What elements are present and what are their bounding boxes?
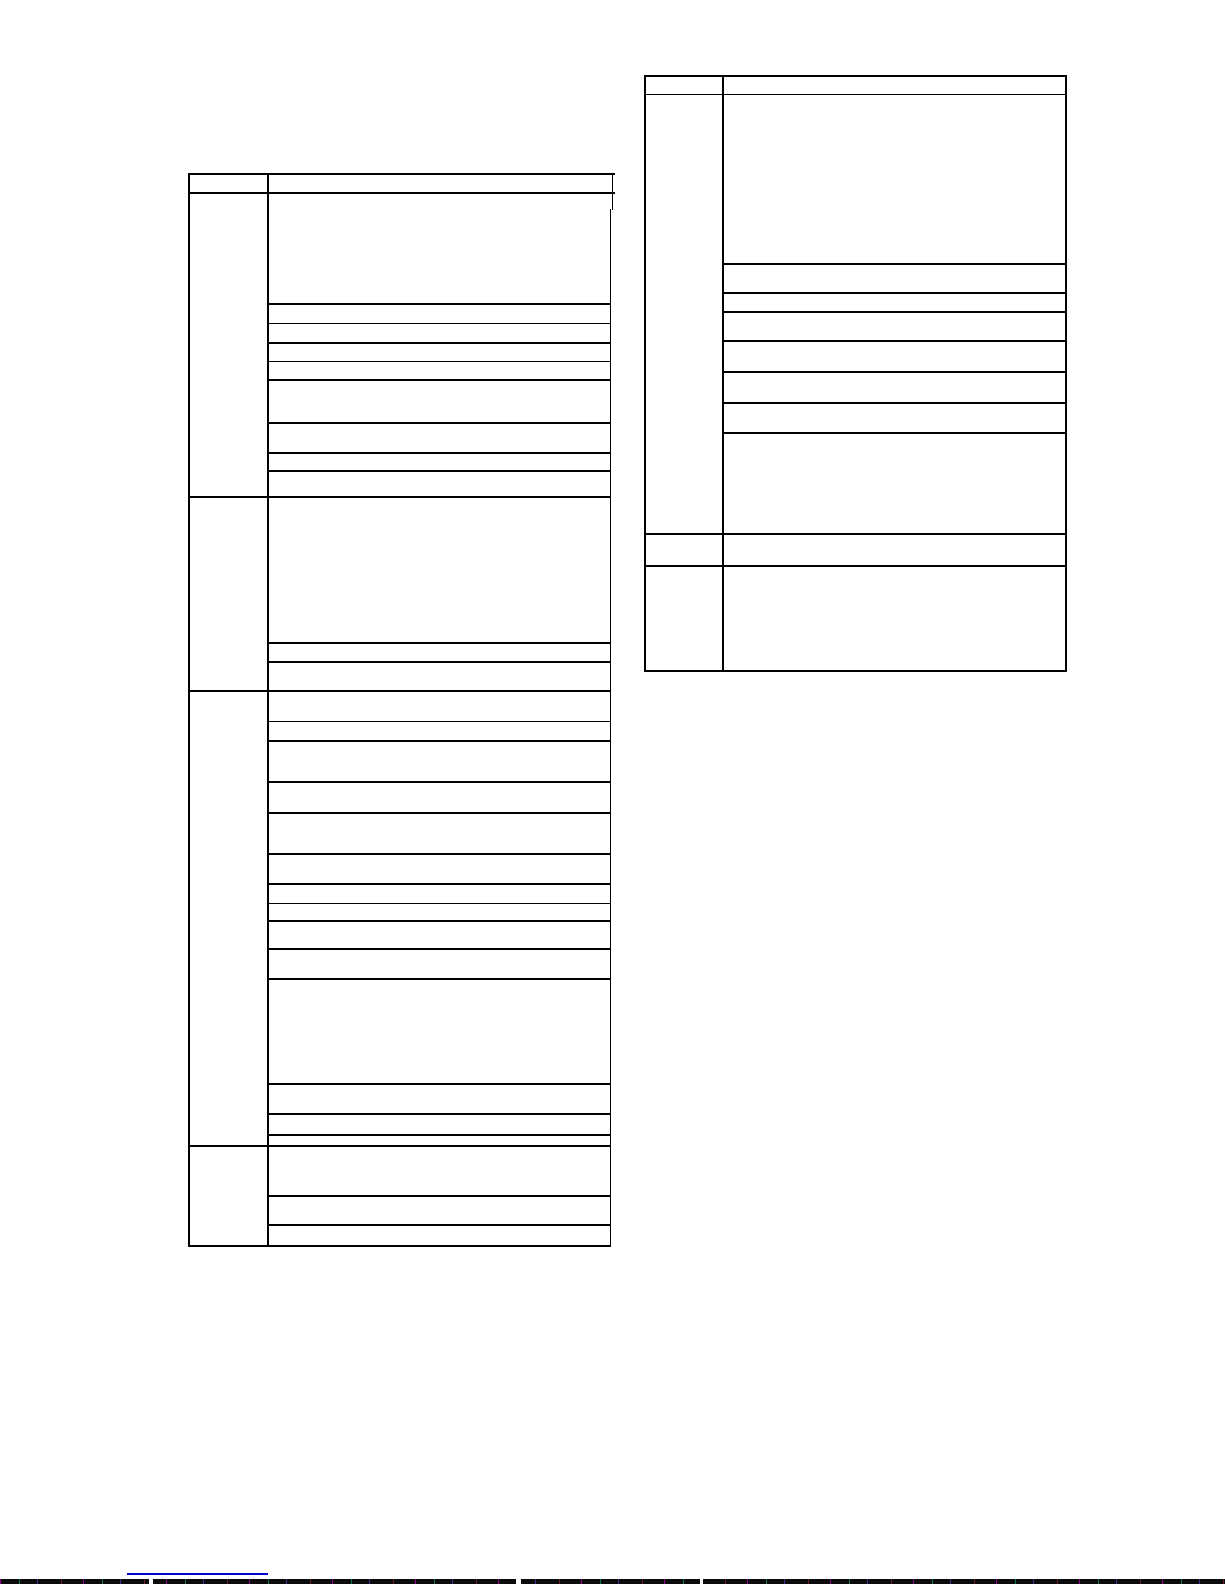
table-bottom-border bbox=[644, 670, 1067, 672]
table-right-border bbox=[610, 209, 612, 1245]
table-top-border bbox=[644, 75, 1067, 77]
document-page bbox=[0, 0, 1225, 1585]
header-divider bbox=[644, 94, 1067, 96]
table-right-border bbox=[1065, 75, 1067, 670]
row-divider bbox=[722, 311, 1065, 313]
row-divider bbox=[267, 853, 610, 855]
row-divider bbox=[267, 1134, 610, 1136]
row-divider bbox=[267, 883, 610, 885]
row-divider bbox=[267, 303, 610, 305]
row-divider bbox=[722, 263, 1065, 265]
row-divider bbox=[722, 371, 1065, 373]
page-edge-artifact-strip bbox=[0, 1579, 1225, 1584]
row-group-divider bbox=[188, 1145, 610, 1147]
row-divider bbox=[267, 379, 610, 381]
row-divider bbox=[267, 323, 610, 325]
row-divider bbox=[267, 740, 610, 742]
table-bottom-border bbox=[188, 1245, 611, 1247]
row-divider bbox=[267, 642, 610, 644]
row-group-divider bbox=[644, 565, 1065, 567]
table-left-border bbox=[644, 75, 646, 672]
row-divider bbox=[267, 812, 610, 814]
row-divider bbox=[267, 452, 610, 454]
table-top-border bbox=[188, 173, 615, 175]
table-left-border bbox=[188, 173, 190, 1247]
row-divider bbox=[267, 342, 610, 344]
column-divider bbox=[722, 75, 724, 670]
row-group-divider bbox=[188, 690, 610, 692]
row-divider bbox=[267, 470, 610, 472]
row-divider bbox=[267, 781, 610, 783]
row-divider bbox=[267, 1224, 610, 1226]
row-divider bbox=[267, 903, 610, 905]
row-divider bbox=[267, 1113, 610, 1115]
row-divider bbox=[722, 432, 1065, 434]
row-divider bbox=[267, 721, 610, 723]
row-divider bbox=[267, 920, 610, 922]
strip-gap bbox=[149, 1579, 153, 1584]
row-divider bbox=[722, 340, 1065, 342]
row-group-divider bbox=[644, 533, 1065, 535]
row-divider bbox=[267, 361, 610, 363]
row-divider bbox=[267, 1083, 610, 1085]
border-artifact bbox=[612, 173, 614, 210]
row-divider bbox=[722, 402, 1065, 404]
row-divider bbox=[267, 1195, 610, 1197]
strip-gap bbox=[516, 1579, 521, 1584]
row-divider bbox=[267, 422, 610, 424]
row-divider bbox=[722, 292, 1065, 294]
row-group-divider bbox=[188, 496, 610, 498]
strip-gap bbox=[700, 1579, 703, 1584]
hyperlink-underline[interactable] bbox=[127, 1573, 268, 1575]
header-divider bbox=[188, 192, 615, 194]
row-divider bbox=[267, 978, 610, 980]
row-divider bbox=[267, 661, 610, 663]
row-divider bbox=[267, 948, 610, 950]
